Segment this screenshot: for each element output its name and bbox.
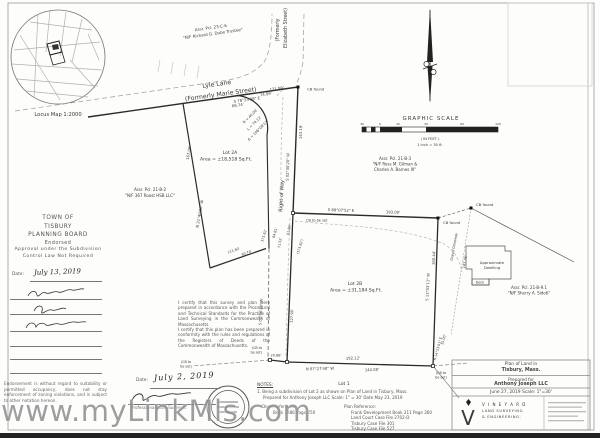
svg-text:60: 60 — [460, 122, 464, 126]
cb-set-label-1: CB to be set — [306, 219, 328, 223]
neighbor-roost-name: "N/F 367 Roost HSB LLC" — [125, 193, 175, 198]
signature-rule-3 — [10, 331, 102, 332]
board-date-value: July 13, 2019 — [34, 267, 81, 277]
board-line-1: TOWN OF — [8, 214, 108, 223]
company-name-1: V I N E Y A R D — [482, 402, 542, 407]
svg-text:V: V — [461, 406, 475, 430]
company-name-2: LAND SURVEYING — [482, 409, 542, 413]
svg-text:30: 30 — [360, 122, 364, 126]
board-line-3: PLANNING BOARD — [8, 231, 108, 240]
neighbor-gilman-parcel: Assr. Pcl. 21-B-3 — [379, 156, 412, 161]
gravel-driveway-label: Gravel Driveway — [450, 233, 459, 261]
cert-date-rule — [150, 388, 220, 389]
cb-set-paren-c1: (CB to — [436, 371, 446, 375]
board-signatures — [26, 289, 86, 328]
logo-address-lines — [548, 402, 586, 421]
dwelling-label-2: Dwelling — [484, 265, 501, 270]
plan-reference-label: Plan Reference: — [344, 404, 376, 409]
dim-147-76: 147.76' — [462, 255, 468, 269]
street-elizabeth-2: Elizabeth Street) — [283, 8, 289, 48]
signature-rule-5 — [10, 359, 102, 360]
lot-2b-name: Lot 2B — [348, 281, 363, 287]
dim-127-96: 127.96' — [290, 309, 295, 323]
cert-paragraph-1: I certify that this survey and plan were… — [178, 300, 270, 327]
bearing-193-line: S 88°07'52" E — [328, 207, 355, 213]
boundary-lines — [88, 87, 574, 398]
company-name-3: & ENGINEERING. — [482, 415, 542, 419]
dim-20-88: 20.88' — [271, 354, 282, 358]
dim-142-88: 142.88' — [365, 367, 379, 372]
title-plan-of-land: Plan of Land in — [452, 362, 590, 367]
scale-unit-note: ( IN FEET ) — [421, 137, 440, 141]
north-arrow-icon — [423, 8, 437, 103]
neighbor-gilman-name-2: Charles A. Barnes III" — [374, 167, 416, 172]
cb-set-paren-a2: be set) — [251, 351, 263, 355]
notes-heading: NOTES: — [257, 383, 273, 388]
cb-found-label-1: CB found — [307, 87, 325, 92]
survey-plan-sheet: Locus Map 1:2000 GRAPHIC SCALE 30 0 15 3… — [0, 0, 600, 438]
neighbor-roost-parcel: Assr. Pcl. 21-B-2 — [134, 187, 167, 192]
neighbor-gilman-name-1: "N/F Ross M. Gilman & — [373, 162, 418, 167]
dim-66-74: 66.74' — [232, 102, 245, 109]
signature-rule-2 — [10, 314, 102, 315]
bearing-east-line: S 13°03'11" W — [424, 273, 430, 301]
dim-143-19: 143.19' — [298, 125, 303, 140]
board-date-label: Date: — [12, 272, 24, 277]
cb-found-label-3: CB found — [476, 202, 494, 207]
dim-64-81: 64.81' — [272, 227, 279, 238]
svg-text:15: 15 — [396, 122, 400, 126]
dim-171-82: 171.82' — [260, 229, 268, 242]
bearing-south-line: N 87°27'48" W — [306, 366, 335, 372]
board-line-2: TISBURY — [8, 223, 108, 232]
cb-set-paren-b2: be set) — [180, 365, 192, 369]
lot-2a-name: Lot 2A — [223, 150, 238, 156]
mls-watermark: www.myLinkMls.com — [1, 394, 311, 428]
street-lyle-lane: Lyle Lane — [202, 79, 232, 90]
neighbor-sidoti-parcel: Assr. Pcl. 21-B-9.1 — [511, 285, 547, 290]
svg-text:120: 120 — [495, 122, 501, 126]
dim-61-99: 61.99' — [286, 224, 292, 235]
signature-rule-6 — [10, 373, 102, 374]
dim-111-60: 111.60' — [227, 247, 240, 255]
lot-2b-area: Area = ±31,184 Sq.Ft. — [330, 288, 382, 294]
cb-found-label-2: CB found — [443, 220, 461, 225]
planning-board-block: TOWN OF TISBURY PLANNING BOARD Endorsed … — [8, 214, 108, 261]
dim-74-99: 74.99' — [260, 91, 273, 98]
plan-reference-2: Land Court Case File 2702-D — [351, 415, 409, 420]
bearing-row-east: S 02°40'20" W — [285, 153, 291, 181]
signature-rule-4 — [10, 346, 102, 347]
signature-rule-1 — [10, 299, 102, 300]
svg-text:30: 30 — [424, 122, 428, 126]
vineyard-logo-icon: V — [461, 399, 475, 430]
graphic-scale: GRAPHIC SCALE 30 0 15 30 60 120 ( IN FEE… — [360, 116, 501, 147]
board-date-rule — [30, 281, 102, 282]
board-line-6: Control Law Not Required — [8, 254, 108, 261]
title-client: Anthony Joseph LLC — [452, 382, 590, 387]
plan-reference-1: Frank Development Book 211 Page 260 — [351, 410, 432, 415]
dim-193-00: 193.00' — [386, 209, 401, 214]
graphic-scale-ticks: 30 0 15 30 60 120 — [360, 122, 501, 126]
neighbor-sidoti-name: "N/F Sherry A. Sidoti" — [508, 291, 551, 296]
cb-set-paren-b1: (CB to — [181, 360, 191, 364]
locus-map-label: Locus Map 1:2000 — [34, 112, 81, 118]
svg-text:0: 0 — [379, 122, 381, 126]
dim-192-12: 192.12' — [346, 355, 360, 360]
curve-delta: Δ = 106°08'13" — [247, 119, 270, 142]
lot-2a-area: Area = ±18,518 Sq.Ft. — [200, 157, 252, 163]
graphic-scale-title: GRAPHIC SCALE — [403, 116, 460, 122]
title-town: Tisbury, Mass. — [452, 368, 590, 373]
plan-reference-4: Tisbury Case File 527 — [351, 426, 395, 431]
scale-ratio-note: 1 inch = 30 ft. — [417, 143, 443, 147]
cert-paragraph-2: I certify that this plan has been prepar… — [178, 327, 270, 349]
dim-15-00: 15.00' — [440, 334, 447, 345]
street-elizabeth-1: (Formerly — [275, 18, 281, 41]
lot-1-label: Lot 1 — [338, 381, 350, 387]
dim-171-82-paren: (171.82') — [296, 238, 305, 255]
dim-160-44: 160.44' — [431, 251, 437, 266]
locus-map: Locus Map 1:2000 — [11, 10, 105, 118]
deck-label: Deck — [476, 281, 485, 285]
title-date-scale: June 27, 2019 Scale: 1"=30' — [452, 390, 590, 395]
right-of-way-label: Right of Way — [278, 180, 286, 212]
plan-reference-3: Tisbury Case File 301 — [351, 421, 395, 426]
dim-71-52: 71.52' — [277, 237, 283, 248]
cert-date-label: Date: — [136, 378, 148, 383]
cb-set-paren-c2: be set) — [435, 376, 447, 380]
